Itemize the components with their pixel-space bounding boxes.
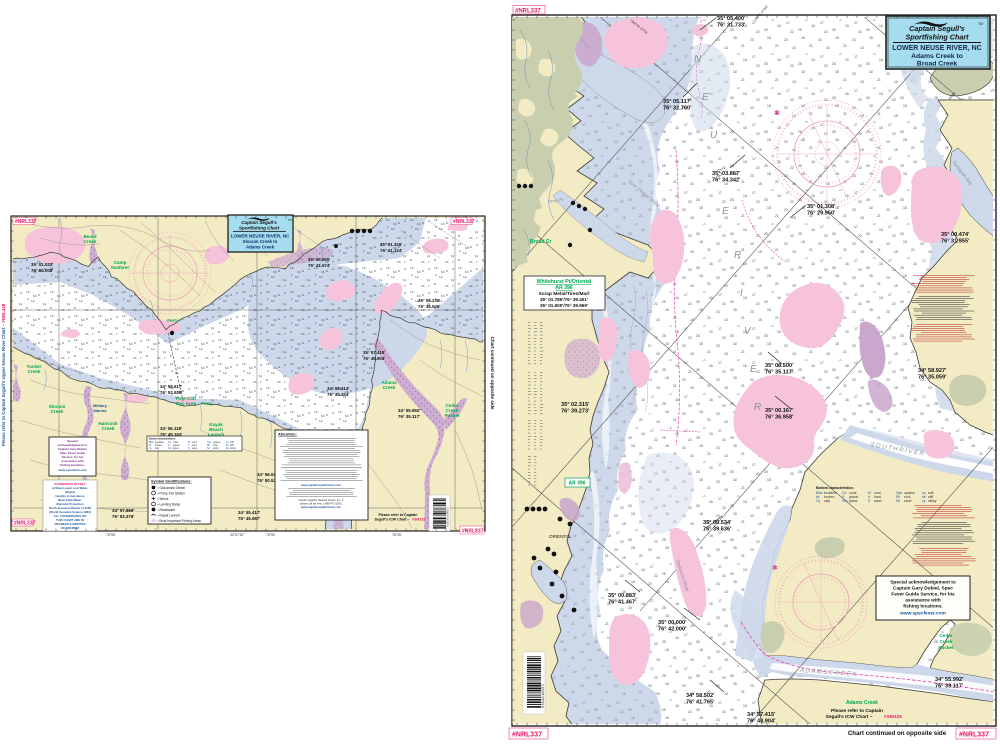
svg-text:TM: TM xyxy=(978,22,983,26)
svg-text:Grs: Grs xyxy=(842,499,848,503)
svg-text:DD.MM.MMM: DD.MM.MMM xyxy=(61,526,79,530)
svg-text:34° 58.927': 34° 58.927' xyxy=(918,368,947,374)
svg-text:Bottom characteristics:: Bottom characteristics: xyxy=(149,438,176,441)
svg-text:Broad Creek: Broad Creek xyxy=(917,61,958,68)
svg-text:• Gas and/or Diesel: • Gas and/or Diesel xyxy=(158,486,186,490)
svg-text:35° 01.308': 35° 01.308' xyxy=(807,204,836,210)
svg-text:34° 58.617': 34° 58.617' xyxy=(160,384,182,389)
svg-text:Creek: Creek xyxy=(28,369,41,374)
svg-text:76° 42.000': 76° 42.000' xyxy=(658,627,687,633)
svg-text:76° 35.117': 76° 35.117' xyxy=(765,370,794,376)
svg-text:34°57'30": 34°57'30" xyxy=(230,533,245,537)
svg-text:www.specfever.com: www.specfever.com xyxy=(57,468,87,472)
svg-text:76°55': 76°55' xyxy=(106,533,116,537)
svg-text:I: I xyxy=(740,288,743,299)
svg-text:• Pump-Out Station: • Pump-Out Station xyxy=(158,492,186,496)
svg-text:76° 45.567': 76° 45.567' xyxy=(238,516,260,521)
svg-text:35° 02.315': 35° 02.315' xyxy=(561,402,590,408)
svg-text:sft: sft xyxy=(226,444,229,447)
svg-text:#NRL337: #NRL337 xyxy=(512,732,542,739)
svg-text:76° 31.733': 76° 31.733' xyxy=(717,23,746,29)
svg-text:#NRL337: #NRL337 xyxy=(515,9,541,15)
svg-text:76° 53.925': 76° 53.925' xyxy=(160,390,182,395)
svg-text:gravel: gravel xyxy=(173,444,180,447)
svg-text:Marina: Marina xyxy=(94,408,108,413)
svg-text:Please refer to Captain: Please refer to Captain xyxy=(379,513,418,517)
svg-text:76°45': 76°45' xyxy=(392,533,402,537)
svg-text:www.captainsegullcharts.com: www.captainsegullcharts.com xyxy=(300,483,342,487)
svg-text:76° 40.904': 76° 40.904' xyxy=(363,356,385,361)
svg-text:76° 41.674': 76° 41.674' xyxy=(308,263,330,268)
svg-text:sticky: sticky xyxy=(230,447,237,450)
svg-text:76° 32.700': 76° 32.700' xyxy=(663,106,692,112)
svg-text:#SM125: #SM125 xyxy=(412,518,425,522)
svg-text:76° 45.464': 76° 45.464' xyxy=(327,392,349,397)
svg-text:Segull's ICW Chart –: Segull's ICW Chart – xyxy=(374,518,409,522)
svg-text:S: S xyxy=(716,168,723,179)
svg-text:✱: ✱ xyxy=(772,564,778,572)
svg-text:Chart continued on opposite si: Chart continued on opposite side xyxy=(848,730,947,737)
svg-text:76° 39.273': 76° 39.273' xyxy=(561,409,590,415)
svg-text:76° 41.467': 76° 41.467' xyxy=(608,600,637,606)
svg-text:sand: sand xyxy=(874,499,881,503)
svg-text:34° 55.992': 34° 55.992' xyxy=(935,677,964,683)
svg-text:#SM125: #SM125 xyxy=(884,714,902,720)
svg-text:34° 57.866': 34° 57.866' xyxy=(112,508,134,513)
svg-text:35° 00.500': 35° 00.500' xyxy=(765,363,794,369)
svg-text:76° 29.950': 76° 29.950' xyxy=(807,211,836,217)
svg-text:34° 59.414': 34° 59.414' xyxy=(327,386,349,391)
svg-text:Ferry: Ferry xyxy=(167,318,179,323)
svg-text:Chart continued on opposite si: Chart continued on opposite side xyxy=(490,337,495,410)
svg-text:sy: sy xyxy=(922,499,926,503)
svg-text:76° 55.008': 76° 55.008' xyxy=(31,268,53,273)
svg-text:35° 01.033': 35° 01.033' xyxy=(31,262,53,267)
svg-text:Rec Area: Rec Area xyxy=(176,401,196,406)
svg-text:35° 57.415': 35° 57.415' xyxy=(363,350,385,355)
svg-text:34° 55.992': 34° 55.992' xyxy=(398,408,420,413)
svg-text:Please refer to Captain: Please refer to Captain xyxy=(831,708,883,714)
svg-text:mud: mud xyxy=(192,442,197,444)
svg-text:E: E xyxy=(722,206,729,217)
svg-text:35° 05.117': 35° 05.117' xyxy=(663,99,692,105)
svg-text:AR 396: AR 396 xyxy=(569,481,586,487)
svg-text:hard: hard xyxy=(192,444,197,447)
svg-text:Adams Creek: Adams Creek xyxy=(846,700,878,706)
svg-text:sand: sand xyxy=(904,499,911,503)
svg-text:U: U xyxy=(710,130,718,141)
svg-text:LOWER NEUSE RIVER, NC: LOWER NEUSE RIVER, NC xyxy=(231,234,290,239)
svg-text:Sd: Sd xyxy=(896,499,900,503)
svg-text:Sportfishing Chart: Sportfishing Chart xyxy=(239,226,280,231)
svg-text:fishing locations.: fishing locations. xyxy=(903,604,942,610)
svg-text:LOWER NEUSE RIVER, NC: LOWER NEUSE RIVER, NC xyxy=(892,45,981,52)
svg-text:Adams Creek: Adams Creek xyxy=(246,245,275,250)
svg-text:grass: grass xyxy=(173,447,179,450)
svg-text:Ferry: Ferry xyxy=(201,401,213,406)
svg-text:Creek: Creek xyxy=(51,409,64,414)
svg-text:35° 00.865': 35° 00.865' xyxy=(308,257,330,262)
svg-text:Attention:: Attention: xyxy=(278,432,297,437)
svg-text:sticky: sticky xyxy=(928,499,937,503)
svg-text:coral: coral xyxy=(173,441,178,444)
svg-text:ORIENTAL: ORIENTAL xyxy=(549,534,572,539)
svg-text:boulders: boulders xyxy=(155,441,165,444)
svg-text:• Kayak Launch: • Kayak Launch xyxy=(158,514,180,518)
svg-text:• Wreck: • Wreck xyxy=(158,497,169,501)
svg-text:Bottom characteristics:: Bottom characteristics: xyxy=(816,486,854,490)
svg-text:34° 56.118': 34° 56.118' xyxy=(160,426,182,431)
svg-text:35° 08.236': 35° 08.236' xyxy=(418,298,440,303)
svg-text:35° 01.326': 35° 01.326' xyxy=(380,242,402,247)
svg-text:76° 39.117': 76° 39.117' xyxy=(935,684,964,690)
svg-text:Slocum Creek to: Slocum Creek to xyxy=(243,239,278,244)
svg-text:35° 00.534': 35° 00.534' xyxy=(703,520,732,526)
svg-text:76° 40.904': 76° 40.904' xyxy=(747,719,776,725)
svg-text:76° 39.636': 76° 39.636' xyxy=(703,527,732,533)
svg-text:R: R xyxy=(754,402,761,413)
svg-text:#NRL337: #NRL337 xyxy=(15,219,37,225)
svg-text:76° 39.117': 76° 39.117' xyxy=(398,414,420,419)
svg-text:G: G xyxy=(168,445,170,447)
svg-text:#NRL337: #NRL337 xyxy=(14,521,36,527)
svg-text:76° 31.955': 76° 31.955' xyxy=(941,239,970,245)
svg-text:fishing locations.: fishing locations. xyxy=(60,463,85,467)
svg-text:TM: TM xyxy=(288,219,291,222)
svg-text:34° 57.415': 34° 57.415' xyxy=(747,712,776,718)
svg-text:76°50': 76°50' xyxy=(266,533,276,537)
svg-text:AR 396: AR 396 xyxy=(555,285,573,291)
svg-text:oysters: oysters xyxy=(213,441,221,444)
svg-text:Cy: Cy xyxy=(816,499,820,503)
svg-text:Sportfishing Chart: Sportfishing Chart xyxy=(905,33,969,42)
svg-text:35° 01.786'/76° 39.401': 35° 01.786'/76° 39.401' xyxy=(540,297,588,302)
svg-text:Cedar: Cedar xyxy=(939,633,952,638)
svg-text:sticky: sticky xyxy=(213,447,220,450)
svg-text:76° 38.536': 76° 38.536' xyxy=(418,304,440,309)
svg-text:• Most Important Fishing Areas: • Most Important Fishing Areas xyxy=(158,519,202,523)
svg-text:• Restaurant: • Restaurant xyxy=(158,508,176,512)
svg-text:grass: grass xyxy=(849,499,858,503)
svg-text:Segull's ICW Chart –: Segull's ICW Chart – xyxy=(826,714,873,720)
svg-text:76° 53.376': 76° 53.376' xyxy=(112,514,134,519)
svg-text:Captain Segull's: Captain Segull's xyxy=(241,220,277,225)
svg-text:Creek: Creek xyxy=(940,639,953,644)
svg-text:stiff: stiff xyxy=(230,444,234,447)
svg-text:35° 00.474': 35° 00.474' xyxy=(941,232,970,238)
svg-text:R: R xyxy=(734,250,741,261)
svg-text:35° 00.167': 35° 00.167' xyxy=(765,408,794,414)
svg-text:Pocket: Pocket xyxy=(938,645,954,650)
svg-text:E: E xyxy=(750,364,757,375)
svg-text:Special acknowledgement to: Special acknowledgement to xyxy=(890,580,956,586)
svg-text:Please refer to Captain Segull: Please refer to Captain Segull's Upper N… xyxy=(1,303,6,446)
svg-text:sand: sand xyxy=(192,448,198,450)
svg-text:Seafarer: Seafarer xyxy=(111,265,130,270)
svg-text:35° 00.000': 35° 00.000' xyxy=(658,620,687,626)
svg-text:76° 41.124': 76° 41.124' xyxy=(380,248,402,253)
svg-text:Symbol Identifications:: Symbol Identifications: xyxy=(151,480,192,484)
svg-text:Adams Creek to: Adams Creek to xyxy=(911,53,963,60)
svg-text:6 53210 10993 5: 6 53210 10993 5 xyxy=(541,684,545,708)
svg-text:clay: clay xyxy=(824,499,830,503)
svg-text:Captain Gary Dubiel, Spec: Captain Gary Dubiel, Spec xyxy=(893,586,953,592)
svg-text:35° 01.600'/76° 39.969': 35° 01.600'/76° 39.969' xyxy=(540,303,588,308)
svg-text:6 53210 10993 5: 6 53210 10993 5 xyxy=(446,507,450,527)
svg-text:soft: soft xyxy=(230,441,234,444)
svg-text:35° 00.883': 35° 00.883' xyxy=(608,593,637,599)
svg-text:Fever Guide Service, for his: Fever Guide Service, for his xyxy=(891,592,955,598)
svg-text:Pocket: Pocket xyxy=(444,413,460,418)
svg-text:35° 05.400': 35° 05.400' xyxy=(717,16,746,22)
svg-text:76° 35.059': 76° 35.059' xyxy=(918,375,947,381)
svg-text:Captain Segull's Nautical Char: Captain Segull's Nautical Charts, Inc. © xyxy=(298,498,343,502)
svg-text:E: E xyxy=(702,92,709,103)
svg-text:N: N xyxy=(694,54,702,65)
svg-text:#NRL337: #NRL337 xyxy=(462,529,484,535)
svg-text:#NRL337: #NRL337 xyxy=(453,219,475,225)
svg-text:Broad Cr: Broad Cr xyxy=(530,239,551,245)
svg-text:Creek: Creek xyxy=(102,426,115,431)
svg-text:broken: broken xyxy=(155,444,163,447)
svg-text:www.specfever.com: www.specfever.com xyxy=(899,611,946,617)
svg-text:assistance with: assistance with xyxy=(905,598,941,604)
svg-text:M: M xyxy=(188,442,190,444)
svg-text:www.captainsegullcharts.com: www.captainsegullcharts.com xyxy=(300,505,342,509)
svg-text:Creek: Creek xyxy=(383,385,396,390)
svg-text:76° 36.958': 76° 36.958' xyxy=(765,415,794,421)
svg-text:Creek: Creek xyxy=(84,239,97,244)
svg-text:#NRL337: #NRL337 xyxy=(959,732,989,739)
svg-text:76° 41.765': 76° 41.765' xyxy=(686,700,715,706)
svg-text:34° 58.502': 34° 58.502' xyxy=(686,693,715,699)
svg-text:✱: ✱ xyxy=(774,109,780,117)
svg-text:• Landing Ramp: • Landing Ramp xyxy=(158,503,181,507)
svg-text:34° 55.417': 34° 55.417' xyxy=(238,510,260,515)
